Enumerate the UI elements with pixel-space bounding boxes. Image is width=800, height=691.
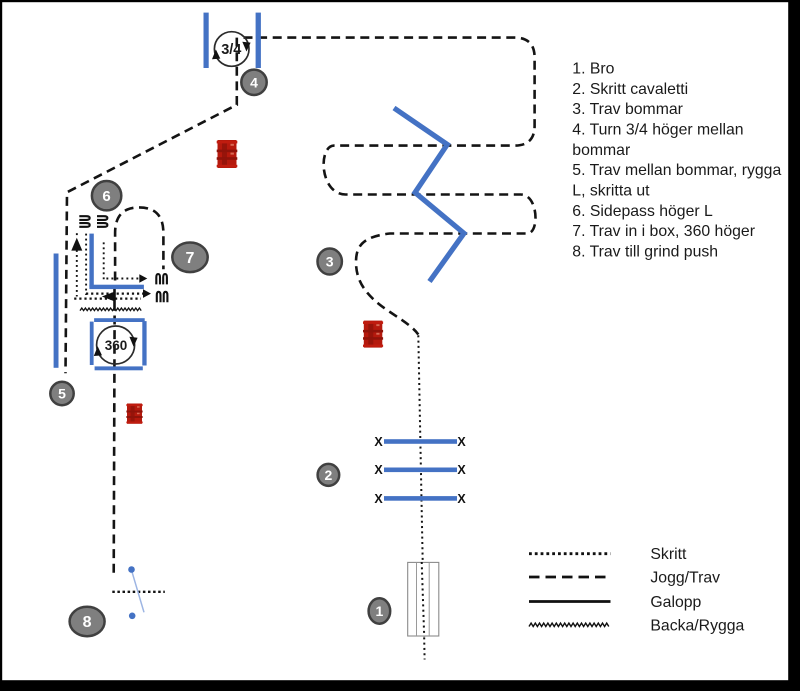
svg-text:Jogg/Trav: Jogg/Trav <box>650 570 720 587</box>
svg-text:2. Skritt cavaletti: 2. Skritt cavaletti <box>572 81 688 98</box>
svg-text:Skritt: Skritt <box>650 546 687 563</box>
svg-text:7. Trav in i box, 360 höger: 7. Trav in i box, 360 höger <box>572 223 755 240</box>
svg-text:X: X <box>374 492 383 506</box>
svg-text:bommar: bommar <box>572 142 630 159</box>
svg-text:8. Trav till grind push: 8. Trav till grind push <box>572 243 718 260</box>
svg-text:1. Bro: 1. Bro <box>572 61 614 78</box>
svg-text:2: 2 <box>325 467 333 483</box>
svg-text:X: X <box>374 463 383 477</box>
svg-text:5. Trav mellan bommar, rygga: 5. Trav mellan bommar, rygga <box>572 162 781 179</box>
svg-text:4. Turn 3/4 höger mellan: 4. Turn 3/4 höger mellan <box>572 122 743 139</box>
svg-text:Backa/Rygga: Backa/Rygga <box>650 618 744 635</box>
svg-text:8: 8 <box>83 614 92 631</box>
svg-text:5: 5 <box>58 386 66 402</box>
svg-text:4: 4 <box>250 74 258 90</box>
svg-text:X: X <box>457 463 466 477</box>
svg-text:360: 360 <box>105 338 128 353</box>
svg-text:L, skritta ut: L, skritta ut <box>572 183 650 200</box>
svg-text:7: 7 <box>186 250 195 267</box>
svg-text:6. Sidepass höger L: 6. Sidepass höger L <box>572 203 713 220</box>
svg-text:6: 6 <box>102 188 110 205</box>
svg-text:Galopp: Galopp <box>650 594 701 611</box>
svg-text:3. Trav bommar: 3. Trav bommar <box>572 101 683 118</box>
svg-text:1: 1 <box>376 603 384 619</box>
svg-text:3/4: 3/4 <box>221 42 241 58</box>
svg-text:3: 3 <box>326 254 334 270</box>
svg-text:X: X <box>457 435 466 449</box>
svg-text:X: X <box>457 492 466 506</box>
svg-text:X: X <box>374 435 383 449</box>
